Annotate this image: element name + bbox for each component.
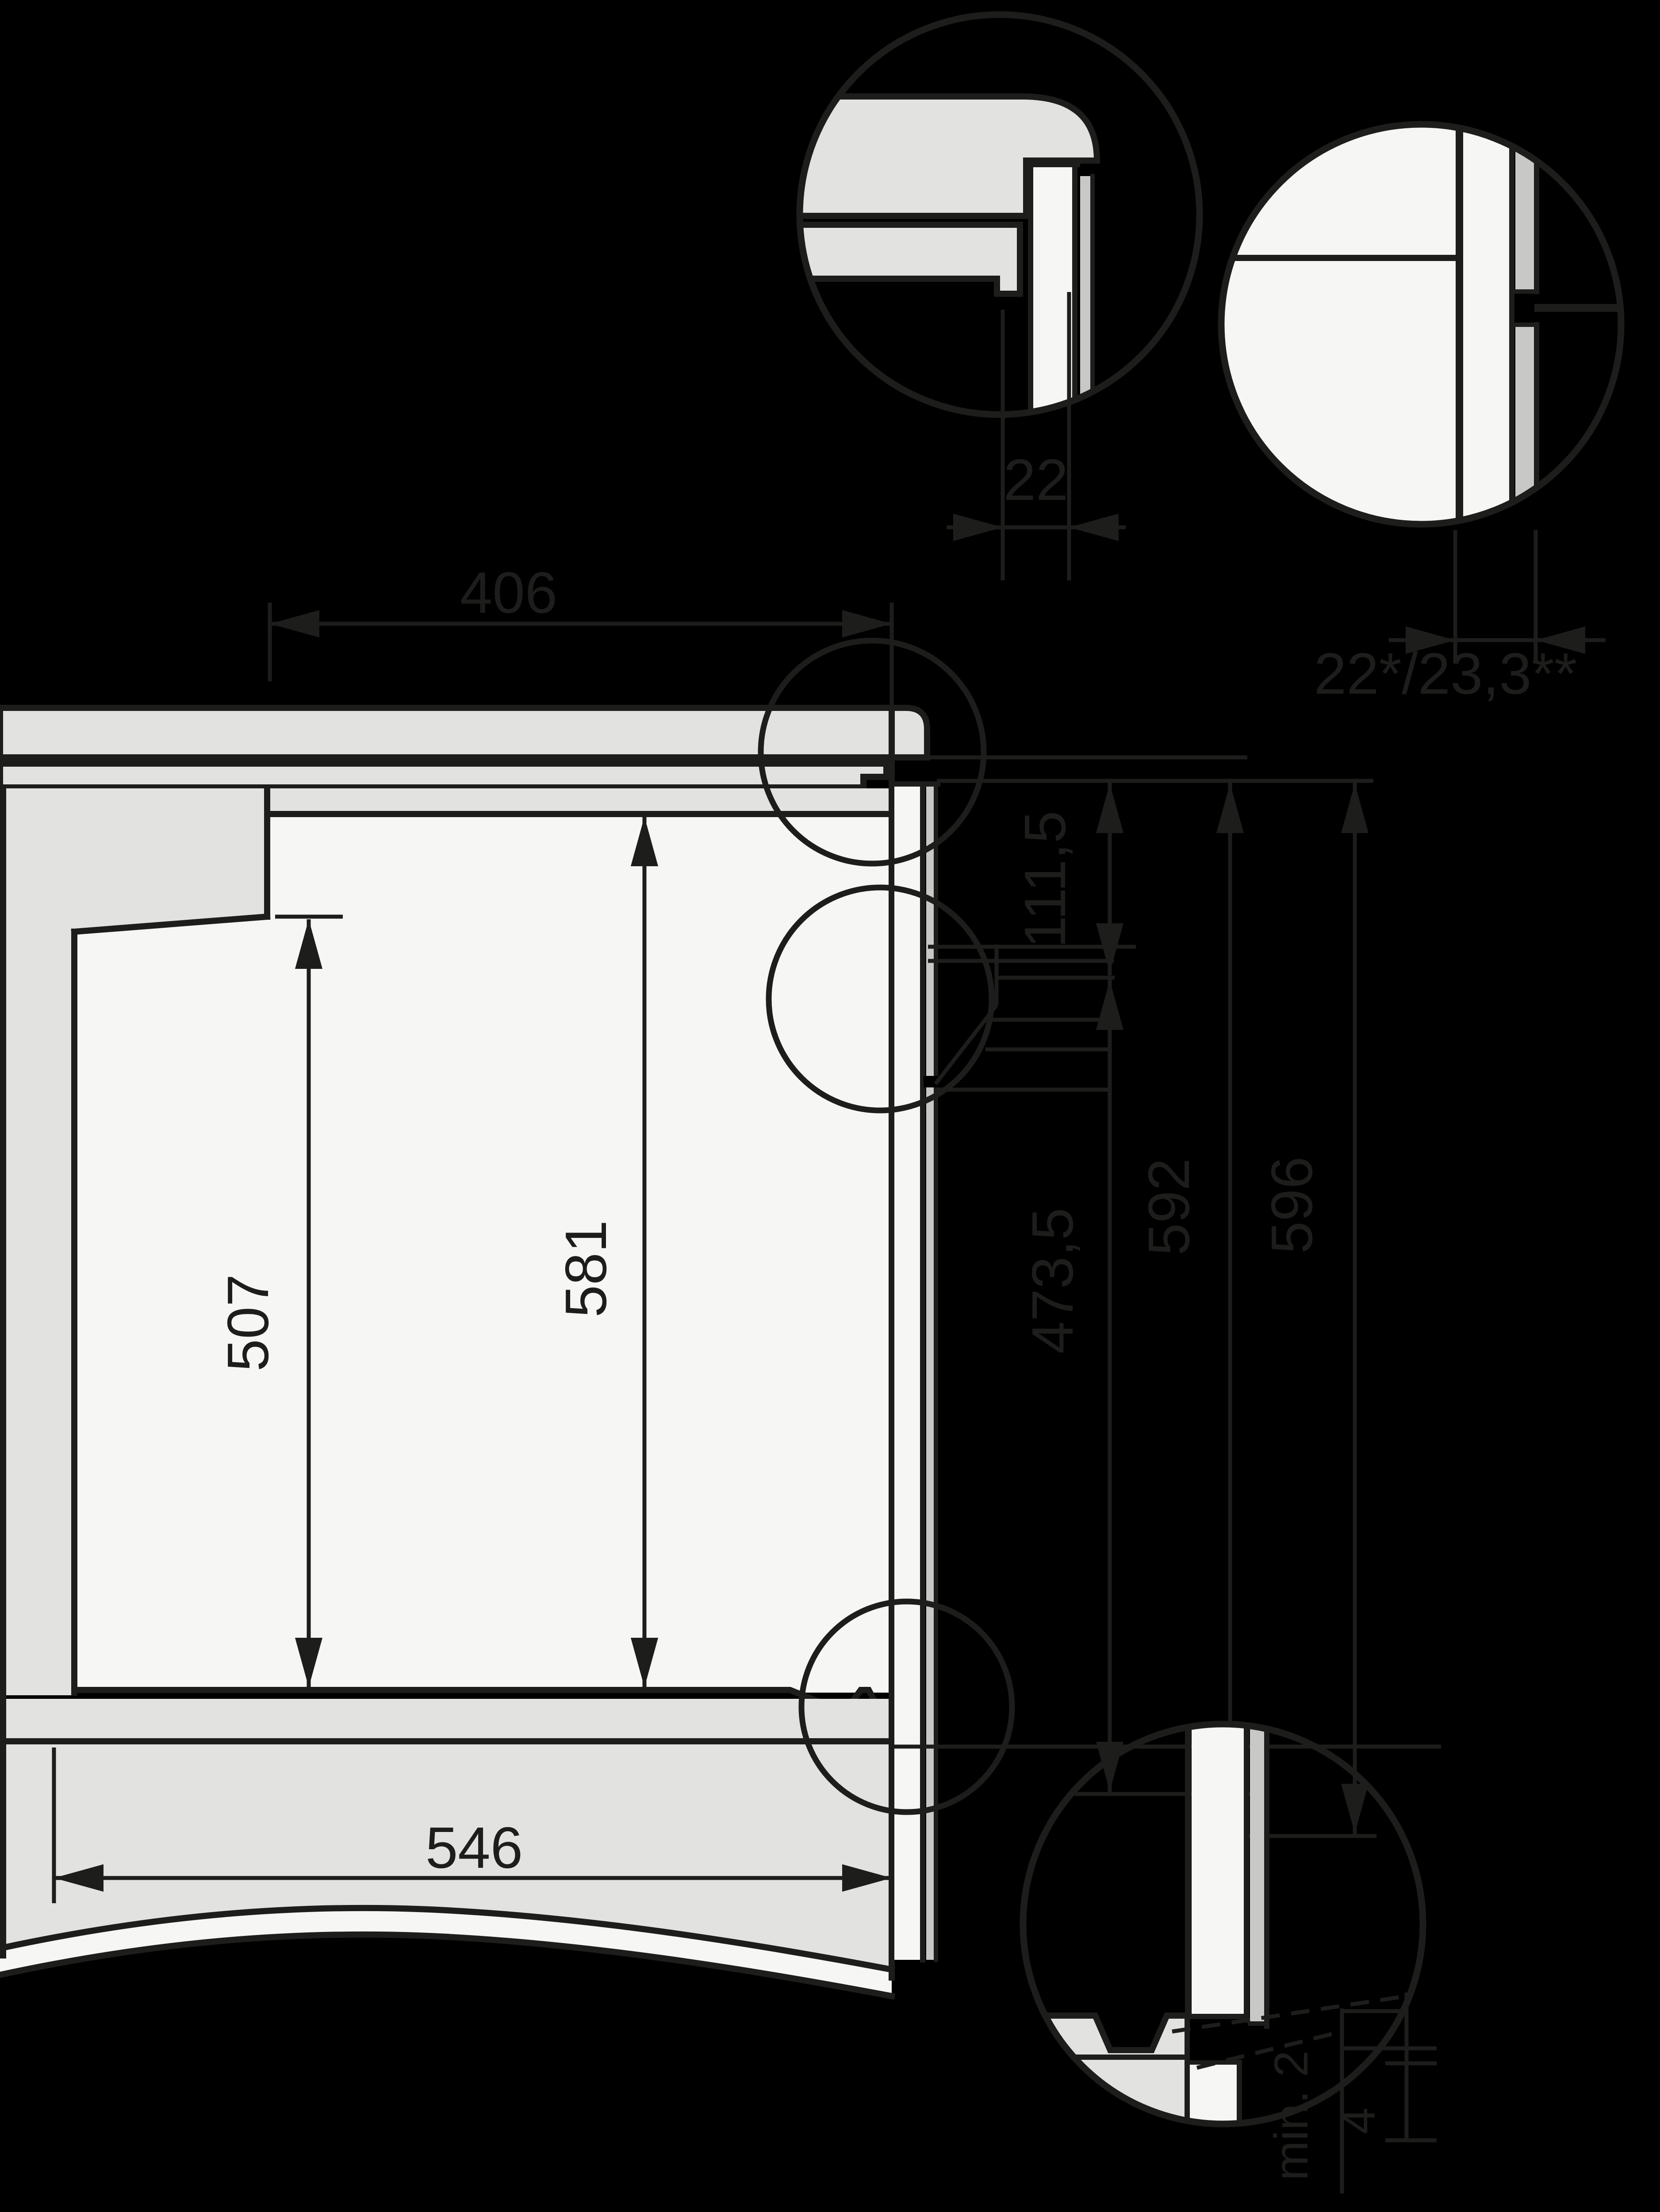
dim-top-depth: 406	[270, 560, 892, 705]
arrowhead-right	[953, 514, 1003, 541]
dim-label-473-5: 473,5	[1020, 1208, 1085, 1354]
frame-band	[0, 788, 892, 813]
rear-wall	[0, 932, 74, 1695]
dim-label-min-2: min. 2	[1264, 2051, 1318, 2181]
dim-label-507: 507	[215, 1274, 280, 1371]
dim-min-gap: min. 2	[1264, 2008, 1437, 2193]
dim-label-546: 546	[426, 1815, 523, 1880]
dim-label-596: 596	[1259, 1156, 1324, 1254]
dim-front-lower: 473,5	[1020, 978, 1123, 1794]
top-front-strip	[0, 764, 886, 787]
dim-label-22-23-3: 22*/23,3**	[1314, 641, 1577, 706]
dim-front-top: 111,5	[1012, 781, 1123, 975]
arrowhead-right	[842, 610, 892, 637]
dim-label-111-5: 111,5	[1012, 811, 1077, 949]
arrowhead-left	[270, 610, 319, 637]
detail-break-band	[1020, 2143, 1187, 2169]
detail-bottom-right: min. 2 4	[1020, 1724, 1437, 2210]
detail-front-strip	[794, 225, 1020, 294]
drawing-stage: 406 507 581 111,5	[0, 0, 1660, 2212]
cabinet-section	[0, 708, 927, 1996]
detail-trim-strip	[1250, 1725, 1264, 2023]
floor-board	[0, 1699, 892, 1741]
detail-niche-area	[1222, 125, 1457, 524]
dim-door-thickness: 22*/23,3**	[1314, 530, 1606, 706]
niche-void	[74, 813, 892, 1693]
detail-plinth-below	[1020, 2169, 1187, 2210]
arrowhead-up	[1096, 783, 1123, 833]
detail-bottom-right-content	[1020, 1725, 1267, 2210]
arrowhead-up	[1341, 783, 1369, 833]
dim-label-22: 22	[1004, 447, 1069, 512]
detail-door-panel	[1192, 1725, 1244, 2016]
dim-label-4: 4	[1331, 2108, 1385, 2134]
dim-niche-height: 592	[1136, 781, 1244, 1794]
arrowhead-down	[1341, 1784, 1369, 1833]
detail-top-left: 22	[794, 15, 1200, 580]
dim-label-581: 581	[553, 1220, 618, 1317]
installation-drawing: 406 507 581 111,5	[0, 0, 1660, 2212]
top-panel	[0, 708, 927, 757]
detail-top-left-content	[794, 96, 1097, 428]
detail-top-right: 22*/23,3**	[1221, 124, 1622, 706]
arrowhead-left	[1069, 514, 1119, 541]
right-extension-lines	[892, 757, 1441, 1836]
dim-front-height: 596	[1259, 781, 1369, 1836]
arrowhead-up	[1096, 980, 1123, 1030]
door-panel	[894, 787, 923, 1960]
dim-label-406: 406	[460, 560, 557, 625]
detail-door-panel	[1463, 125, 1509, 524]
dim-label-592: 592	[1136, 1158, 1201, 1256]
dim-recess: 4	[1331, 1993, 1437, 2142]
rear-top-block	[0, 813, 267, 932]
arrowhead-up	[1216, 783, 1244, 833]
